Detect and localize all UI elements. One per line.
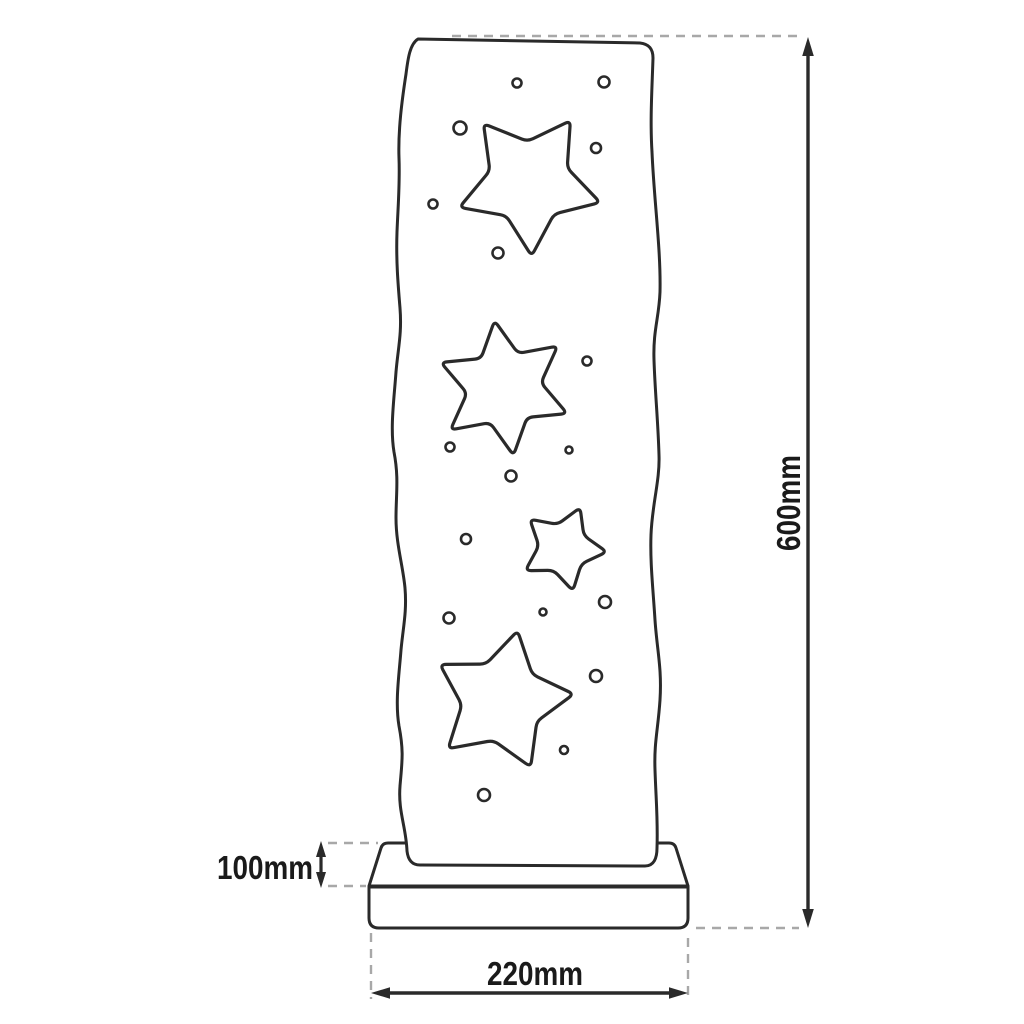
hole-cutout: [540, 609, 547, 616]
hole-cutout: [599, 596, 611, 608]
hole-cutout: [446, 443, 455, 452]
hole-cutout: [444, 613, 455, 624]
arrow-up-icon: [316, 841, 326, 857]
width-dimension: 220mm: [371, 955, 688, 999]
base-height-dimension: 100mm: [217, 841, 326, 888]
hole-cutout: [454, 122, 467, 135]
height-dimension-label: 600mm: [770, 455, 807, 551]
hole-cutout: [493, 248, 504, 259]
arrow-left-icon: [371, 987, 390, 999]
hole-cutout: [461, 534, 471, 544]
base-height-dimension-label: 100mm: [217, 849, 313, 886]
hole-cutout: [599, 77, 610, 88]
hole-cutout: [583, 357, 592, 366]
width-dimension-label: 220mm: [487, 955, 583, 992]
arrow-down-icon: [802, 909, 814, 928]
lamp-drawing: [369, 39, 688, 928]
hole-cutout: [506, 471, 517, 482]
hole-cutout: [560, 746, 568, 754]
hole-cutout: [591, 143, 601, 153]
lamp-dimension-diagram: 600mm 100mm 220mm: [0, 0, 1024, 1024]
base-lower-slab: [369, 887, 688, 928]
hole-cutout: [513, 79, 522, 88]
hole-cutout: [478, 789, 490, 801]
arrow-right-icon: [669, 987, 688, 999]
technical-drawing-page: 600mm 100mm 220mm: [0, 0, 1024, 1024]
height-dimension: 600mm: [770, 37, 814, 928]
arrow-down-icon: [316, 872, 326, 888]
hole-cutout: [590, 670, 602, 682]
arrow-up-icon: [802, 37, 814, 56]
hole-cutout: [429, 200, 438, 209]
hole-cutout: [566, 447, 573, 454]
